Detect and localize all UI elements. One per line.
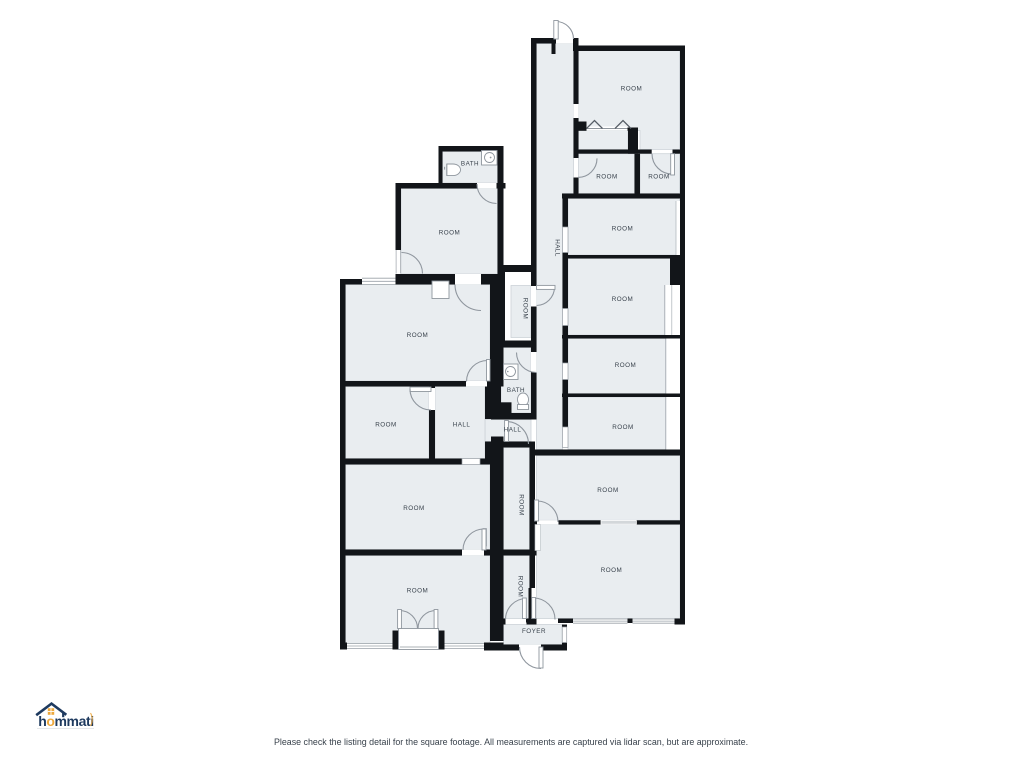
svg-text:ROOM: ROOM (375, 422, 396, 429)
svg-text:ROOM: ROOM (517, 576, 524, 597)
svg-text:HALL: HALL (554, 239, 561, 257)
svg-text:hommati: hommati (38, 713, 94, 729)
svg-text:ROOM: ROOM (518, 494, 525, 515)
svg-text:ROOM: ROOM (612, 296, 633, 303)
svg-text:ROOM: ROOM (648, 174, 669, 181)
svg-text:HALL: HALL (504, 427, 522, 434)
svg-text:ROOM: ROOM (439, 230, 460, 237)
svg-text:HALL: HALL (453, 422, 471, 429)
svg-text:FOYER: FOYER (522, 628, 546, 635)
svg-text:ROOM: ROOM (596, 174, 617, 181)
svg-text:ROOM: ROOM (601, 567, 622, 574)
svg-text:BATH: BATH (461, 161, 479, 168)
svg-text:ROOM: ROOM (407, 588, 428, 595)
svg-text:ROOM: ROOM (612, 424, 633, 431)
svg-text:Please check the listing detai: Please check the listing detail for the … (274, 737, 748, 747)
svg-text:ROOM: ROOM (612, 226, 633, 233)
svg-text:ROOM: ROOM (597, 487, 618, 494)
svg-text:ROOM: ROOM (407, 332, 428, 339)
svg-text:ROOM: ROOM (522, 298, 529, 319)
svg-text:BATH: BATH (507, 387, 525, 394)
svg-text:ROOM: ROOM (615, 362, 636, 369)
svg-text:ROOM: ROOM (403, 505, 424, 512)
svg-text:ROOM: ROOM (621, 86, 642, 93)
